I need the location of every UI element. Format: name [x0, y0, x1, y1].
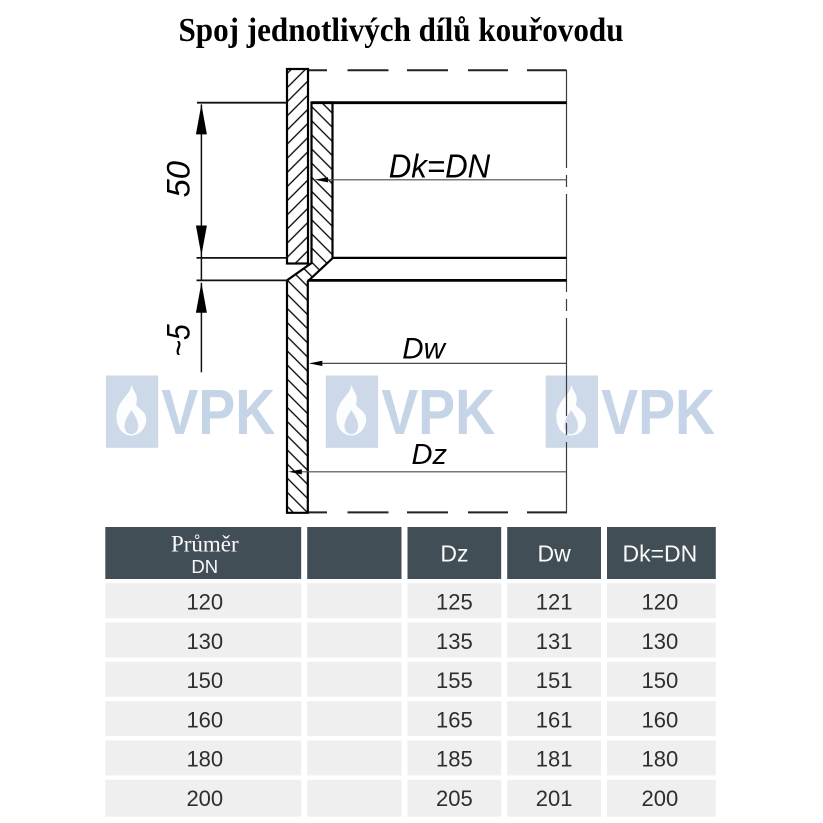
svg-text:120: 120: [186, 590, 223, 615]
svg-text:180: 180: [186, 747, 223, 772]
svg-text:200: 200: [186, 786, 223, 811]
svg-text:205: 205: [436, 786, 473, 811]
svg-text:VPK: VPK: [161, 376, 275, 448]
svg-text:130: 130: [642, 629, 679, 654]
svg-text:Dw: Dw: [537, 541, 571, 567]
svg-text:201: 201: [536, 786, 573, 811]
svg-text:150: 150: [186, 668, 223, 693]
svg-text:Spoj jednotlivých dílů kouřovo: Spoj jednotlivých dílů kouřovodu: [179, 12, 624, 49]
svg-text:165: 165: [436, 707, 473, 732]
svg-text:VPK: VPK: [381, 376, 495, 448]
svg-text:VPK: VPK: [601, 376, 715, 448]
svg-text:151: 151: [536, 668, 573, 693]
svg-text:Průměr: Průměr: [171, 532, 239, 557]
svg-text:Dk=DN: Dk=DN: [389, 148, 491, 185]
svg-text:161: 161: [536, 707, 573, 732]
svg-text:125: 125: [436, 590, 473, 615]
svg-text:131: 131: [536, 629, 573, 654]
svg-text:200: 200: [642, 786, 679, 811]
svg-text:50: 50: [161, 161, 197, 198]
svg-text:Dw: Dw: [402, 333, 446, 366]
svg-text:150: 150: [642, 668, 679, 693]
svg-text:160: 160: [642, 707, 679, 732]
svg-text:130: 130: [186, 629, 223, 654]
svg-text:Dz: Dz: [412, 439, 448, 471]
svg-text:Dz: Dz: [440, 541, 468, 567]
svg-text:135: 135: [436, 629, 473, 654]
svg-text:121: 121: [536, 590, 573, 615]
svg-text:160: 160: [186, 707, 223, 732]
svg-text:155: 155: [436, 668, 473, 693]
svg-text:~5: ~5: [161, 323, 197, 356]
svg-text:181: 181: [536, 747, 573, 772]
svg-text:180: 180: [642, 747, 679, 772]
svg-text:DN: DN: [191, 556, 218, 577]
svg-text:120: 120: [642, 590, 679, 615]
svg-text:Dk=DN: Dk=DN: [623, 541, 698, 567]
svg-text:185: 185: [436, 747, 473, 772]
